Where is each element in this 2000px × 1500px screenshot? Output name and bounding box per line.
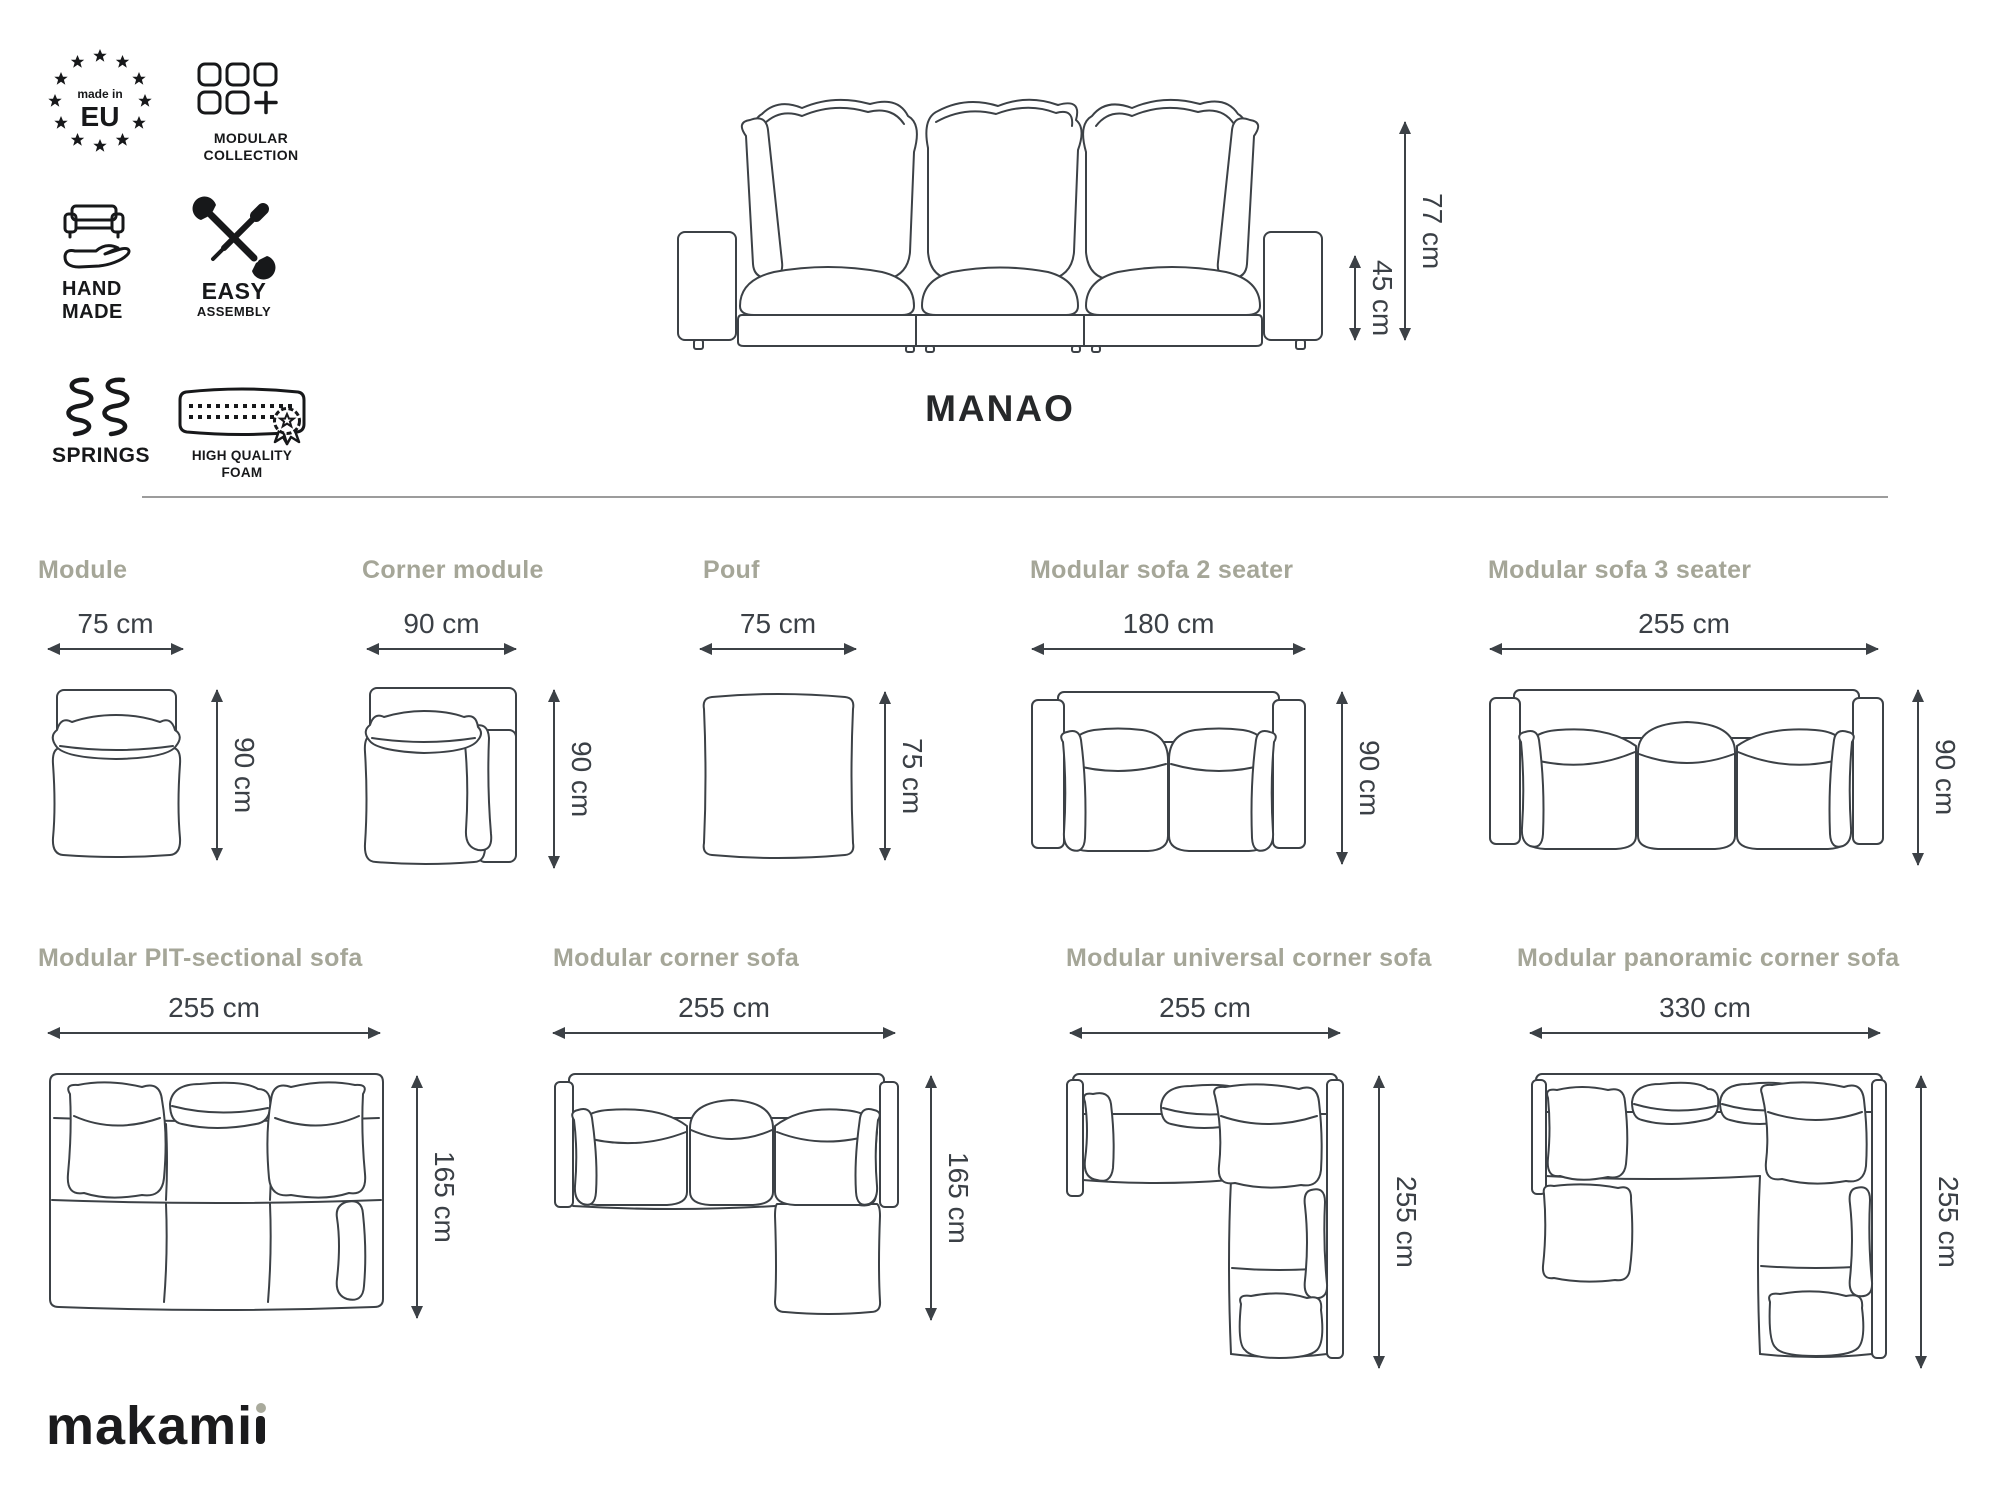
corner-module-top-drawing xyxy=(362,686,523,870)
brand-logo: makami xyxy=(46,1396,267,1456)
pit-sectional-depth-arrow xyxy=(416,1076,418,1318)
corner-module-depth-dim: 90 cm xyxy=(565,690,597,868)
sofa-3-seater-depth-dim: 90 cm xyxy=(1929,690,1961,865)
universal-corner-top-drawing xyxy=(1065,1072,1345,1365)
panoramic-corner-top-drawing xyxy=(1530,1072,1888,1365)
corner-sofa-width-dim: 255 cm xyxy=(553,992,895,1024)
module-top-drawing xyxy=(48,688,185,860)
module-width-arrow xyxy=(48,648,183,650)
pouf-width-dim: 75 cm xyxy=(700,608,856,640)
module-label: Module xyxy=(38,556,127,585)
universal-corner-width-dim: 255 cm xyxy=(1070,992,1340,1024)
panoramic-corner-depth-arrow xyxy=(1920,1076,1922,1368)
seat-height-arrow xyxy=(1354,256,1356,340)
universal-corner-depth-arrow xyxy=(1378,1076,1380,1368)
hand-made-label-1: HAND xyxy=(62,278,122,301)
logo-i-dot xyxy=(256,1403,266,1413)
total-height-dim: 77 cm xyxy=(1416,122,1448,340)
corner-module-label: Corner module xyxy=(362,556,544,585)
pouf-width-arrow xyxy=(700,648,856,650)
modular-collection-label-1: MODULAR xyxy=(196,130,306,146)
pit-sectional-label: Modular PIT-sectional sofa xyxy=(38,944,363,973)
brand-logo-text: makami xyxy=(46,1396,253,1456)
sofa-3-seater-depth-arrow xyxy=(1917,690,1919,865)
panoramic-corner-label: Modular panoramic corner sofa xyxy=(1517,944,1899,973)
brand-logo-accent-i xyxy=(253,1396,267,1456)
sofa-front-view-drawing xyxy=(676,84,1324,354)
pit-sectional-width-arrow xyxy=(48,1032,380,1034)
pit-sectional-depth-dim: 165 cm xyxy=(428,1076,460,1318)
pouf-depth-dim: 75 cm xyxy=(896,692,928,860)
sofa-2-seater-width-arrow xyxy=(1032,648,1305,650)
section-divider xyxy=(142,496,1888,498)
sofa-3-seater-label: Modular sofa 3 seater xyxy=(1488,556,1751,585)
sofa-2-seater-width-dim: 180 cm xyxy=(1032,608,1305,640)
corner-sofa-width-arrow xyxy=(553,1032,895,1034)
corner-sofa-top-drawing xyxy=(553,1072,900,1320)
made-in-label: made in xyxy=(77,87,122,101)
high-quality-foam-label-1: HIGH QUALITY xyxy=(176,448,308,463)
universal-corner-width-arrow xyxy=(1070,1032,1340,1034)
pouf-label: Pouf xyxy=(703,556,760,585)
sofa-2-seater-depth-dim: 90 cm xyxy=(1353,692,1385,864)
springs-label: SPRINGS xyxy=(49,444,153,468)
sofa-3-seater-width-arrow xyxy=(1490,648,1878,650)
corner-module-width-arrow xyxy=(367,648,516,650)
logo-i-stem xyxy=(256,1416,265,1444)
module-depth-arrow xyxy=(216,690,218,860)
corner-sofa-depth-dim: 165 cm xyxy=(942,1076,974,1320)
hand-made-icon xyxy=(58,202,142,276)
springs-icon xyxy=(60,376,134,438)
pit-sectional-width-dim: 255 cm xyxy=(48,992,380,1024)
sofa-2-seater-top-drawing xyxy=(1030,690,1307,865)
product-title: MANAO xyxy=(850,388,1150,430)
sofa-2-seater-depth-arrow xyxy=(1341,692,1343,864)
made-in-eu-icon: made in EU xyxy=(52,40,148,162)
pouf-top-drawing xyxy=(700,690,857,862)
pouf-depth-arrow xyxy=(884,692,886,860)
universal-corner-depth-dim: 255 cm xyxy=(1390,1076,1422,1368)
spec-sheet: made in EU MODULAR COLLECTION HAND MADE xyxy=(0,0,2000,1500)
corner-module-depth-arrow xyxy=(553,690,555,868)
seat-height-dim: 45 cm xyxy=(1366,256,1398,340)
modular-collection-icon xyxy=(197,62,281,118)
corner-module-width-dim: 90 cm xyxy=(367,608,516,640)
module-width-dim: 75 cm xyxy=(48,608,183,640)
modular-collection-label-2: COLLECTION xyxy=(196,147,306,163)
sofa-3-seater-top-drawing xyxy=(1488,688,1885,865)
sofa-3-seater-width-dim: 255 cm xyxy=(1490,608,1878,640)
panoramic-corner-width-dim: 330 cm xyxy=(1530,992,1880,1024)
eu-label: EU xyxy=(81,101,120,132)
panoramic-corner-width-arrow xyxy=(1530,1032,1880,1034)
panoramic-corner-depth-dim: 255 cm xyxy=(1932,1076,1964,1368)
module-depth-dim: 90 cm xyxy=(228,690,260,860)
total-height-arrow xyxy=(1404,122,1406,340)
universal-corner-label: Modular universal corner sofa xyxy=(1066,944,1432,973)
corner-sofa-label: Modular corner sofa xyxy=(553,944,799,973)
hand-made-label-2: MADE xyxy=(62,301,123,324)
easy-assembly-label-2: ASSEMBLY xyxy=(192,304,276,319)
corner-sofa-depth-arrow xyxy=(930,1076,932,1320)
sofa-2-seater-label: Modular sofa 2 seater xyxy=(1030,556,1293,585)
high-quality-foam-icon xyxy=(176,384,308,446)
easy-assembly-icon xyxy=(198,202,270,274)
easy-assembly-label-1: EASY xyxy=(192,278,276,305)
high-quality-foam-label-2: FOAM xyxy=(176,465,308,480)
pit-sectional-top-drawing xyxy=(48,1072,385,1312)
